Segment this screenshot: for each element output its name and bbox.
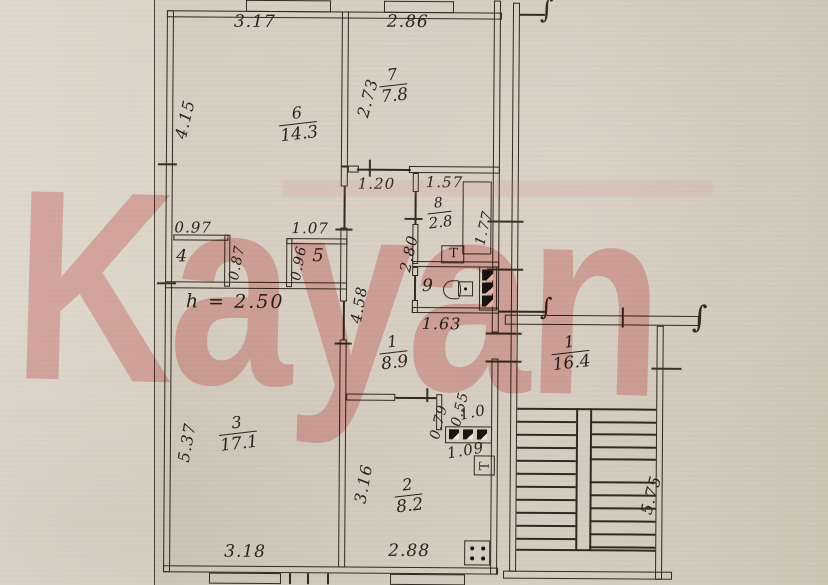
scanned-floor-plan: ∫ ∫ [0, 0, 828, 585]
stair-step [516, 538, 575, 540]
dim-bottom-left: 3.18 [224, 542, 266, 562]
dim-top-right: 2.86 [387, 12, 429, 32]
stair-step [517, 473, 576, 475]
gas-stove-icon [464, 540, 490, 565]
balcony-door [289, 573, 291, 584]
wall-segment [503, 571, 672, 580]
dim-kitchen-height: 3.16 [351, 463, 377, 505]
dim-bottom-right: 2.88 [388, 541, 430, 561]
stair-step [517, 486, 576, 488]
dim-room7-height: 2.73 [353, 76, 382, 119]
window [209, 573, 281, 585]
window [246, 0, 331, 12]
stove-burner [470, 546, 474, 550]
stair-edge [516, 549, 655, 552]
stove-burner [481, 556, 485, 560]
stair-step [517, 460, 576, 462]
stair-step [590, 458, 656, 460]
stove-burner [481, 546, 485, 550]
stair-step [589, 546, 655, 548]
entry-marker-label: T [478, 462, 493, 471]
balcony-door [327, 573, 329, 584]
dim-left-height: 4.15 [171, 98, 199, 141]
stove-burner [470, 556, 474, 560]
stair-step [516, 525, 575, 527]
wall-break-icon: ∫ [692, 300, 708, 335]
kitchen2-area: 8.2 [395, 494, 425, 517]
stair-step [516, 512, 575, 514]
stair-step [589, 533, 655, 535]
room7-area: 7.8 [379, 84, 409, 107]
balcony-door [307, 573, 309, 584]
window [390, 574, 465, 585]
kitchen2-label: 2 8.2 [392, 475, 424, 516]
stair-step [517, 499, 576, 501]
dim-top-left: 3.17 [234, 12, 276, 32]
agency-watermark: Kayan [10, 148, 662, 438]
stair-step [589, 520, 655, 522]
room7-label: 7 7.8 [377, 65, 409, 106]
wall-break-icon: ∫ [540, 0, 554, 25]
